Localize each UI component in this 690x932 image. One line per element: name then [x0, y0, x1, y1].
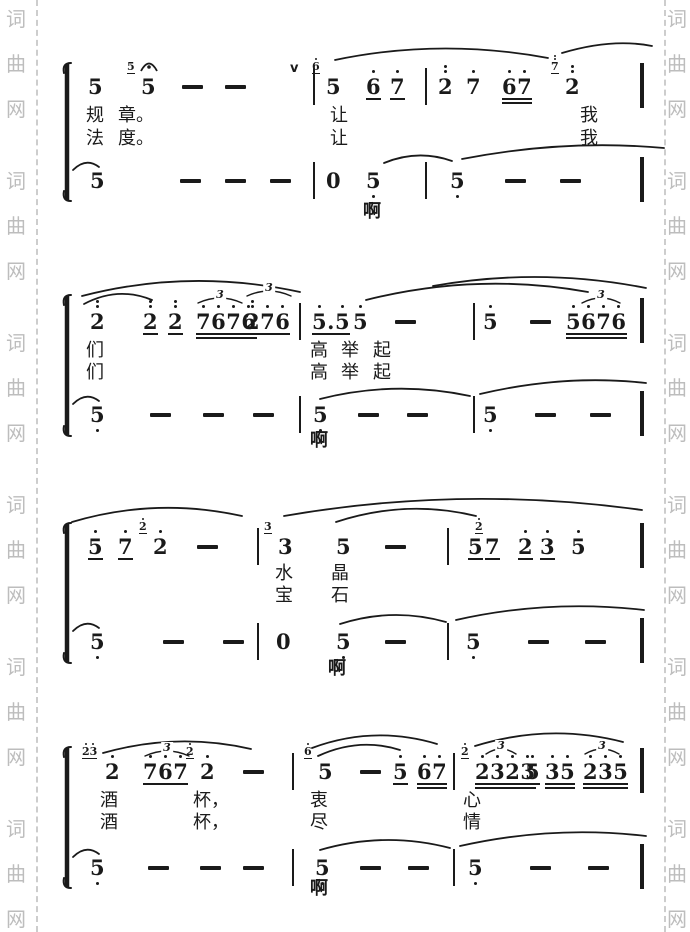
- duration-dash: [505, 169, 526, 183]
- note-digit: 5: [450, 169, 465, 193]
- note-digit: 6: [211, 310, 226, 334]
- octave-dot-below: [96, 429, 99, 432]
- note-digit: 3: [490, 760, 505, 784]
- note-digit: 6: [611, 310, 626, 334]
- octave-dot-below: [489, 429, 492, 432]
- duration-dash: [530, 856, 551, 870]
- triplet-number: 3: [595, 289, 607, 301]
- dash-glyph: [358, 413, 379, 417]
- octave-dot-above: [189, 743, 191, 745]
- grace-digit: 2: [475, 521, 483, 532]
- jianpu-note: 5: [336, 535, 351, 559]
- octave-dot-above: [159, 530, 162, 533]
- octave-dot-above: [251, 300, 254, 303]
- lyric-syllable: 章。: [118, 105, 154, 127]
- barline: [299, 303, 301, 340]
- grace-digit: 3: [90, 746, 98, 757]
- duration-dash: [358, 403, 379, 417]
- octave-dot-above: [508, 70, 511, 73]
- jianpu-note: 235: [583, 760, 628, 784]
- dash-glyph: [505, 179, 526, 183]
- note-digit: 5: [141, 75, 156, 99]
- note-digit: 5: [88, 75, 103, 99]
- barline: [292, 849, 294, 886]
- final-barline: [640, 618, 644, 663]
- lyric-syllable: 让: [330, 128, 348, 150]
- grace-digit: 7: [551, 61, 559, 72]
- jianpu-note: 5: [466, 630, 481, 654]
- jianpu-note: 223: [105, 760, 120, 784]
- note-digit: 2: [143, 310, 158, 334]
- rhythm-underline: [312, 333, 350, 335]
- jianpu-note: 5: [90, 403, 105, 427]
- jianpu-note: 5676: [566, 310, 627, 334]
- jianpu-note: 7: [390, 75, 405, 99]
- jianpu-note: 5: [353, 310, 368, 334]
- lyric-syllable: 情: [463, 812, 481, 834]
- octave-dot-above: [478, 518, 480, 520]
- lyric-syllable: 法: [86, 128, 104, 150]
- jianpu-note: 35: [545, 760, 575, 784]
- rhythm-underline: [502, 102, 532, 104]
- octave-dot-above: [602, 305, 605, 308]
- dash-glyph: [385, 545, 406, 549]
- octave-dot-above: [149, 305, 152, 308]
- note-digit: 5: [366, 169, 381, 193]
- dash-glyph: [360, 770, 381, 774]
- grace-note: 23: [82, 746, 97, 759]
- jianpu-note: 767: [143, 760, 188, 784]
- jianpu-note: 5: [571, 535, 586, 559]
- lyric-syllable: 规: [86, 105, 104, 127]
- note-digit: 5: [468, 856, 483, 880]
- dash-glyph: [530, 320, 551, 324]
- note-digit: 5: [318, 760, 333, 784]
- octave-dot-above: [96, 300, 99, 303]
- note-digit: 7: [196, 310, 211, 334]
- rhythm-underline: [583, 783, 628, 785]
- jianpu-note: 2: [90, 310, 105, 334]
- octave-dot-above: [523, 70, 526, 73]
- rhythm-underline: [245, 333, 290, 335]
- lyric-syllable: 们: [86, 340, 104, 362]
- note-digit: 5: [560, 760, 575, 784]
- rhythm-underline: [196, 337, 257, 339]
- jianpu-note: 5: [90, 856, 105, 880]
- note-digit: 2: [153, 535, 168, 559]
- jianpu-note: 5: [366, 169, 381, 193]
- note-digit: 5: [483, 403, 498, 427]
- note-digit: 5: [525, 760, 540, 784]
- grace-note: 6: [304, 746, 312, 759]
- jianpu-note: 3: [540, 535, 555, 559]
- lyric-syllable: 我: [580, 105, 598, 127]
- rhythm-underline: [390, 98, 405, 100]
- note-digit: 5: [90, 403, 105, 427]
- jianpu-note: 0: [276, 630, 291, 654]
- octave-dot-above: [124, 530, 127, 533]
- octave-dot-above: [572, 305, 575, 308]
- octave-dot-above: [174, 305, 177, 308]
- octave-dot-above: [315, 58, 317, 60]
- grace-note: 2: [475, 521, 483, 534]
- octave-dot-above: [247, 305, 250, 308]
- note-digit: 7: [226, 310, 241, 334]
- dash-glyph: [360, 866, 381, 870]
- grace-note: 7: [551, 61, 559, 74]
- vocalise-syllable: 啊: [363, 201, 381, 223]
- dash-glyph: [585, 640, 606, 644]
- octave-dot-below: [96, 882, 99, 885]
- octave-dot-below: [456, 195, 459, 198]
- note-digit: 6: [581, 310, 596, 334]
- rhythm-underline: [366, 98, 381, 100]
- barline: [313, 162, 315, 199]
- lyric-syllable: 杯，: [193, 790, 229, 812]
- note-digit: 6: [275, 310, 290, 334]
- note-digit: 6: [502, 75, 517, 99]
- octave-dot-above: [164, 755, 167, 758]
- note-digit: 2: [475, 760, 490, 784]
- octave-dot-above: [149, 755, 152, 758]
- octave-dot-above: [571, 70, 574, 73]
- octave-dot-above: [489, 305, 492, 308]
- duration-dash: [182, 75, 203, 89]
- jianpu-note: 276: [245, 310, 290, 334]
- note-digit: 5: [393, 760, 408, 784]
- rhythm-underline: [118, 558, 133, 560]
- note-digit: 2: [505, 760, 520, 784]
- dash-glyph: [243, 866, 264, 870]
- octave-dot-above: [464, 743, 466, 745]
- dash-glyph: [243, 770, 264, 774]
- dash-glyph: [588, 866, 609, 870]
- jianpu-note: 5: [90, 169, 105, 193]
- octave-dot-below: [372, 195, 375, 198]
- final-barline: [640, 63, 644, 108]
- jianpu-note: 72: [485, 535, 500, 559]
- octave-dot-above: [554, 58, 556, 60]
- dash-glyph: [408, 866, 429, 870]
- sheet-music-page: 词曲网词曲网词曲网词曲网词曲网词曲网词曲网词曲网词曲网词曲网词曲网词曲网 555…: [0, 0, 690, 932]
- rhythm-underline: [518, 558, 533, 560]
- octave-dot-above: [423, 755, 426, 758]
- lyric-syllable: 衷: [310, 790, 328, 812]
- octave-dot-below: [96, 656, 99, 659]
- rhythm-underline: [540, 558, 555, 560]
- note-digit: 7: [390, 75, 405, 99]
- jianpu-note: 27: [565, 75, 580, 99]
- octave-dot-below: [474, 882, 477, 885]
- dash-glyph: [223, 640, 244, 644]
- barline: [473, 303, 475, 340]
- dash-glyph: [528, 640, 549, 644]
- duration-dash: [360, 856, 381, 870]
- octave-dot-above: [589, 755, 592, 758]
- jianpu-note: 7: [466, 75, 481, 99]
- duration-dash: [225, 169, 246, 183]
- octave-dot-above: [551, 755, 554, 758]
- lyric-syllable: 杯，: [193, 812, 229, 834]
- duration-dash: [270, 169, 291, 183]
- duration-dash: [408, 856, 429, 870]
- note-digit: 5: [315, 856, 330, 880]
- octave-dot-above: [217, 305, 220, 308]
- lyric-syllable: 们: [86, 362, 104, 384]
- note-digit: 5: [468, 535, 483, 559]
- grace-digit: 2: [139, 521, 147, 532]
- jianpu-note: 67: [502, 75, 532, 99]
- triplet-number: 3: [495, 740, 507, 752]
- note-digit: 5: [90, 856, 105, 880]
- barline: [453, 849, 455, 886]
- barline: [453, 753, 455, 790]
- barline: [292, 753, 294, 790]
- lyric-syllable: 举: [341, 340, 359, 362]
- jianpu-note: 5: [483, 310, 498, 334]
- dash-glyph: [180, 179, 201, 183]
- duration-dash: [163, 630, 184, 644]
- jianpu-note: 2: [518, 535, 533, 559]
- duration-dash: [200, 856, 221, 870]
- octave-dot-above: [341, 305, 344, 308]
- triplet-number: 3: [161, 742, 173, 754]
- octave-dot-above: [396, 70, 399, 73]
- grace-note: 2: [186, 746, 194, 759]
- rhythm-underline: [485, 558, 500, 560]
- note-digit: 2: [168, 310, 183, 334]
- note-digit: 7: [173, 760, 188, 784]
- fermata-icon: [139, 54, 159, 69]
- octave-dot-above: [472, 70, 475, 73]
- dash-glyph: [200, 866, 221, 870]
- dash-glyph: [225, 179, 246, 183]
- octave-dot-above: [359, 305, 362, 308]
- jianpu-note: 33: [278, 535, 293, 559]
- rhythm-underline: [475, 787, 536, 789]
- note-digit: 5: [353, 310, 368, 334]
- note-digit: 2: [565, 75, 580, 99]
- duration-dash: [197, 535, 218, 549]
- triplet-number: 3: [214, 289, 226, 301]
- duration-dash: [180, 169, 201, 183]
- final-barline: [640, 157, 644, 202]
- grace-digit: 2: [186, 746, 194, 757]
- lyric-syllable: 石: [331, 585, 349, 607]
- dash-glyph: [385, 640, 406, 644]
- rhythm-underline: [417, 783, 447, 785]
- duration-dash: [385, 630, 406, 644]
- barline: [257, 528, 259, 565]
- jianpu-note: 5.5: [312, 310, 350, 334]
- jianpu-note: 6: [366, 75, 381, 99]
- note-digit: 7: [260, 310, 275, 334]
- jianpu-note: 5: [393, 760, 408, 784]
- duration-dash: [243, 760, 264, 774]
- barline: [447, 623, 449, 660]
- note-digit: 2: [583, 760, 598, 784]
- vocalise-syllable: 啊: [310, 430, 328, 452]
- grace-digit: 3: [264, 521, 272, 532]
- jianpu-note: 5: [315, 856, 330, 880]
- rhythm-underline: [143, 783, 188, 785]
- rhythm-underline: [525, 783, 540, 785]
- lyric-syllable: 让: [330, 105, 348, 127]
- note-digit: 5: [88, 535, 103, 559]
- jianpu-note: 5: [468, 535, 483, 559]
- rhythm-underline: [143, 333, 158, 335]
- note-digit: 3: [545, 760, 560, 784]
- jianpu-note: 5: [313, 403, 328, 427]
- note-digit: 5: [90, 169, 105, 193]
- jianpu-note: 22: [153, 535, 168, 559]
- jianpu-note: 22: [200, 760, 215, 784]
- final-barline: [640, 391, 644, 436]
- duration-dash: [150, 403, 171, 417]
- octave-dot-above: [266, 305, 269, 308]
- duration-dash: [588, 856, 609, 870]
- note-digit: 6: [417, 760, 432, 784]
- note-digit: 5: [566, 310, 581, 334]
- octave-dot-above: [526, 755, 529, 758]
- note-digit: 2: [105, 760, 120, 784]
- octave-dot-above: [202, 305, 205, 308]
- jianpu-note: 5: [468, 856, 483, 880]
- barline: [299, 396, 301, 433]
- duration-dash: [528, 630, 549, 644]
- duration-dash: [203, 403, 224, 417]
- lyric-syllable: 起: [373, 362, 391, 384]
- lyric-syllable: 水: [275, 563, 293, 585]
- lyric-syllable: 度。: [118, 128, 154, 150]
- jianpu-note: 55: [141, 75, 156, 99]
- note-digit: 5: [335, 310, 350, 334]
- note-digit: 2: [438, 75, 453, 99]
- dash-glyph: [530, 866, 551, 870]
- octave-dot-above: [587, 305, 590, 308]
- note-digit: 5: [571, 535, 586, 559]
- octave-dot-above: [619, 755, 622, 758]
- jianpu-note: 5: [336, 630, 351, 654]
- duration-dash: [530, 310, 551, 324]
- octave-dot-above: [96, 305, 99, 308]
- barline: [425, 162, 427, 199]
- octave-dot-above: [481, 755, 484, 758]
- duration-dash: [385, 535, 406, 549]
- rhythm-underline: [566, 337, 627, 339]
- note-digit: 3: [598, 760, 613, 784]
- note-digit: 6: [366, 75, 381, 99]
- note-digit: 7: [432, 760, 447, 784]
- dash-glyph: [148, 866, 169, 870]
- grace-note: 5: [127, 61, 135, 74]
- note-digit: 5: [326, 75, 341, 99]
- final-barline: [640, 748, 644, 793]
- rhythm-underline: [88, 558, 103, 560]
- jianpu-note: 2: [143, 310, 158, 334]
- jianpu-note: 7: [118, 535, 133, 559]
- grace-note: 2: [461, 746, 469, 759]
- duration-dash: [148, 856, 169, 870]
- jianpu-note: 56: [318, 760, 333, 784]
- octave-dot-above: [179, 755, 182, 758]
- triplet-number: 3: [263, 282, 275, 294]
- jianpu-note: 67: [417, 760, 447, 784]
- jianpu-score-layer: 55556672767275055规章。让我法度。让我啊v22276762765…: [0, 0, 690, 932]
- jianpu-note: 5: [450, 169, 465, 193]
- final-barline: [640, 523, 644, 568]
- dash-glyph: [535, 413, 556, 417]
- dash-glyph: [182, 85, 203, 89]
- jianpu-note: 2: [438, 75, 453, 99]
- lyric-syllable: 高: [310, 340, 328, 362]
- octave-dot-above: [232, 305, 235, 308]
- note-digit: 7: [143, 760, 158, 784]
- duration-dash: [407, 403, 428, 417]
- duration-dash: [360, 760, 381, 774]
- note-digit: 2: [200, 760, 215, 784]
- octave-dot-above: [554, 55, 556, 57]
- note-digit: 3: [540, 535, 555, 559]
- lyric-syllable: 心: [463, 790, 481, 812]
- rhythm-underline: [545, 783, 575, 785]
- dash-glyph: [197, 545, 218, 549]
- octave-dot-above: [92, 743, 94, 745]
- duration-dash: [560, 169, 581, 183]
- octave-dot-above: [444, 70, 447, 73]
- rhythm-underline: [566, 333, 627, 335]
- lyric-syllable: 宝: [275, 585, 293, 607]
- octave-dot-above: [94, 530, 97, 533]
- octave-dot-above: [174, 300, 177, 303]
- dash-glyph: [150, 413, 171, 417]
- final-barline: [640, 298, 644, 343]
- grace-note: 6: [312, 61, 320, 74]
- octave-dot-above: [566, 755, 569, 758]
- jianpu-note: 5: [88, 535, 103, 559]
- octave-dot-above: [438, 755, 441, 758]
- lyric-syllable: 高: [310, 362, 328, 384]
- barline: [257, 623, 259, 660]
- duration-dash: [535, 403, 556, 417]
- octave-dot-above: [281, 305, 284, 308]
- note-digit: .: [327, 310, 335, 334]
- lyric-syllable: 举: [341, 362, 359, 384]
- note-digit: 7: [118, 535, 133, 559]
- jianpu-note: 56: [326, 75, 341, 99]
- dash-glyph: [253, 413, 274, 417]
- note-digit: 5: [336, 630, 351, 654]
- duration-dash: [585, 630, 606, 644]
- note-digit: 5: [90, 630, 105, 654]
- jianpu-note: 5: [483, 403, 498, 427]
- rhythm-underline: [583, 787, 628, 789]
- lyric-syllable: 晶: [331, 563, 349, 585]
- note-digit: 0: [326, 169, 341, 193]
- dash-glyph: [395, 320, 416, 324]
- breath-mark: v: [290, 61, 298, 76]
- lyric-syllable: 酒: [100, 812, 118, 834]
- rhythm-underline: [168, 333, 183, 335]
- rhythm-underline: [468, 558, 483, 560]
- duration-dash: [225, 75, 246, 89]
- note-digit: 0: [276, 630, 291, 654]
- octave-dot-above: [111, 755, 114, 758]
- octave-dot-above: [149, 300, 152, 303]
- octave-dot-above: [251, 305, 254, 308]
- octave-dot-above: [571, 65, 574, 68]
- note-digit: 5: [312, 310, 327, 334]
